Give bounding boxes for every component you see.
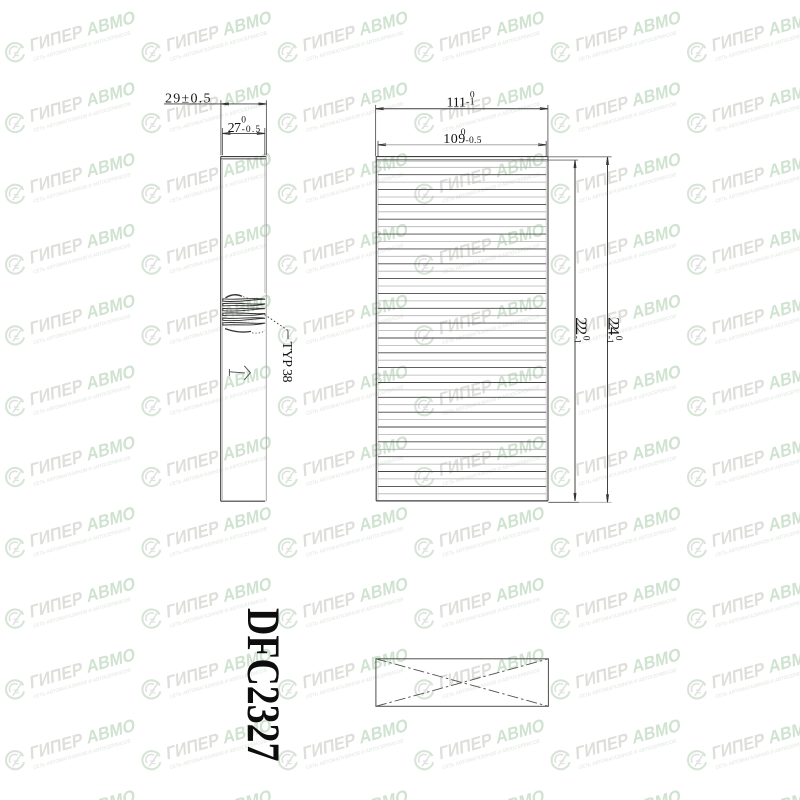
svg-text:DFC2327: DFC2327 [238, 608, 289, 762]
svg-text:-1: -1 [604, 336, 614, 344]
svg-text:0: 0 [241, 115, 246, 125]
svg-text:-0.5: -0.5 [466, 136, 482, 146]
svg-text:-1: -1 [572, 336, 582, 344]
svg-text:222: 222 [572, 317, 591, 335]
svg-text:0: 0 [470, 91, 475, 101]
svg-text:111: 111 [447, 95, 467, 110]
svg-text:224: 224 [605, 317, 624, 335]
svg-text:TYP 38: TYP 38 [279, 342, 294, 383]
